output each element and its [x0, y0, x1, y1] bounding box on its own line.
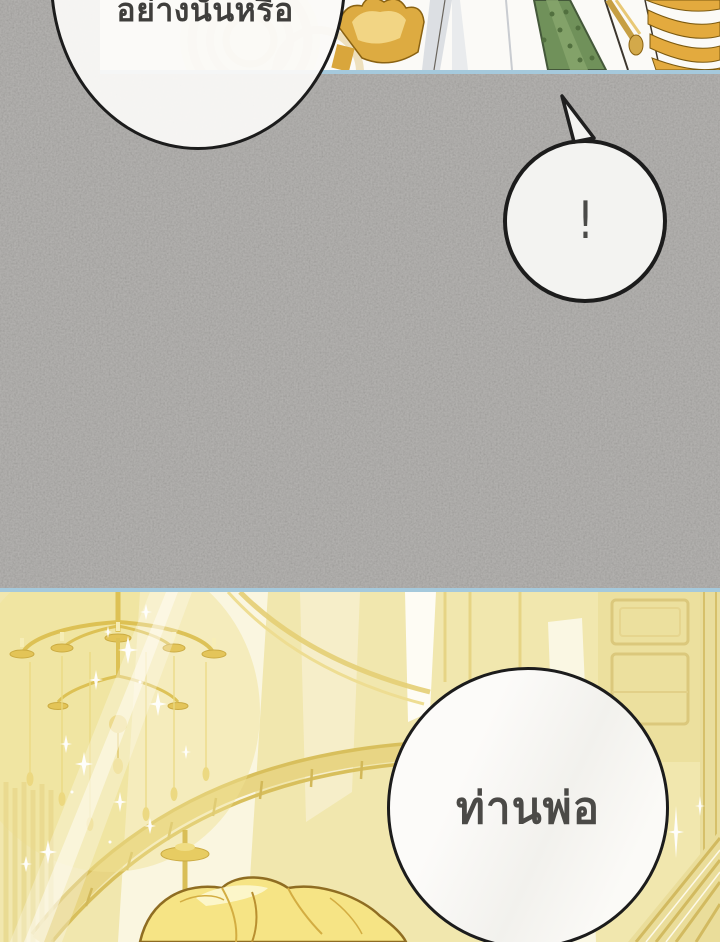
- speech-bubble-question-text: อย่างนั้นหรือ: [85, 0, 325, 30]
- gold-epaulette: [331, 0, 424, 70]
- white-robe-folds: [422, 0, 512, 70]
- panel-bottom-palace: ท่านพ่อ: [0, 588, 720, 942]
- speech-bubble-father: ท่านพ่อ: [387, 667, 669, 942]
- speech-bubble-father-text: ท่านพ่อ: [456, 773, 600, 843]
- gold-sleeve-bands: [646, 0, 720, 70]
- green-sash: [534, 0, 606, 70]
- speech-bubble-exclamation: !: [503, 139, 667, 303]
- speech-bubble-exclamation-text: !: [577, 191, 594, 251]
- speech-bubble-tail: [548, 88, 604, 146]
- comic-page: อย่างนั้นหรือ !: [0, 0, 720, 942]
